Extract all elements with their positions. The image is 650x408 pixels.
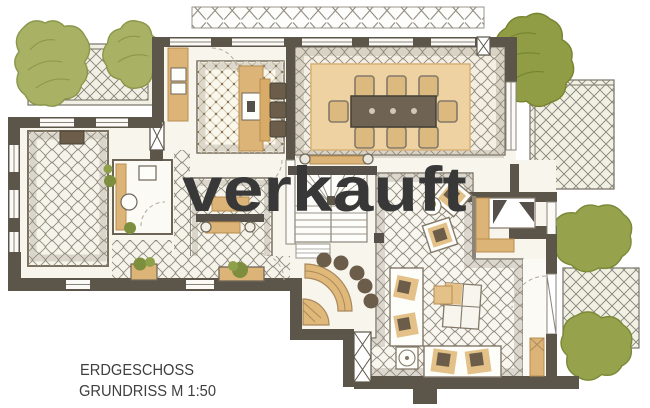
svg-text:GRUNDRISS M 1:50: GRUNDRISS M 1:50 <box>79 383 216 400</box>
svg-text:ERDGESCHOSS: ERDGESCHOSS <box>80 362 194 379</box>
svg-text:verkauft: verkauft <box>182 155 467 225</box>
